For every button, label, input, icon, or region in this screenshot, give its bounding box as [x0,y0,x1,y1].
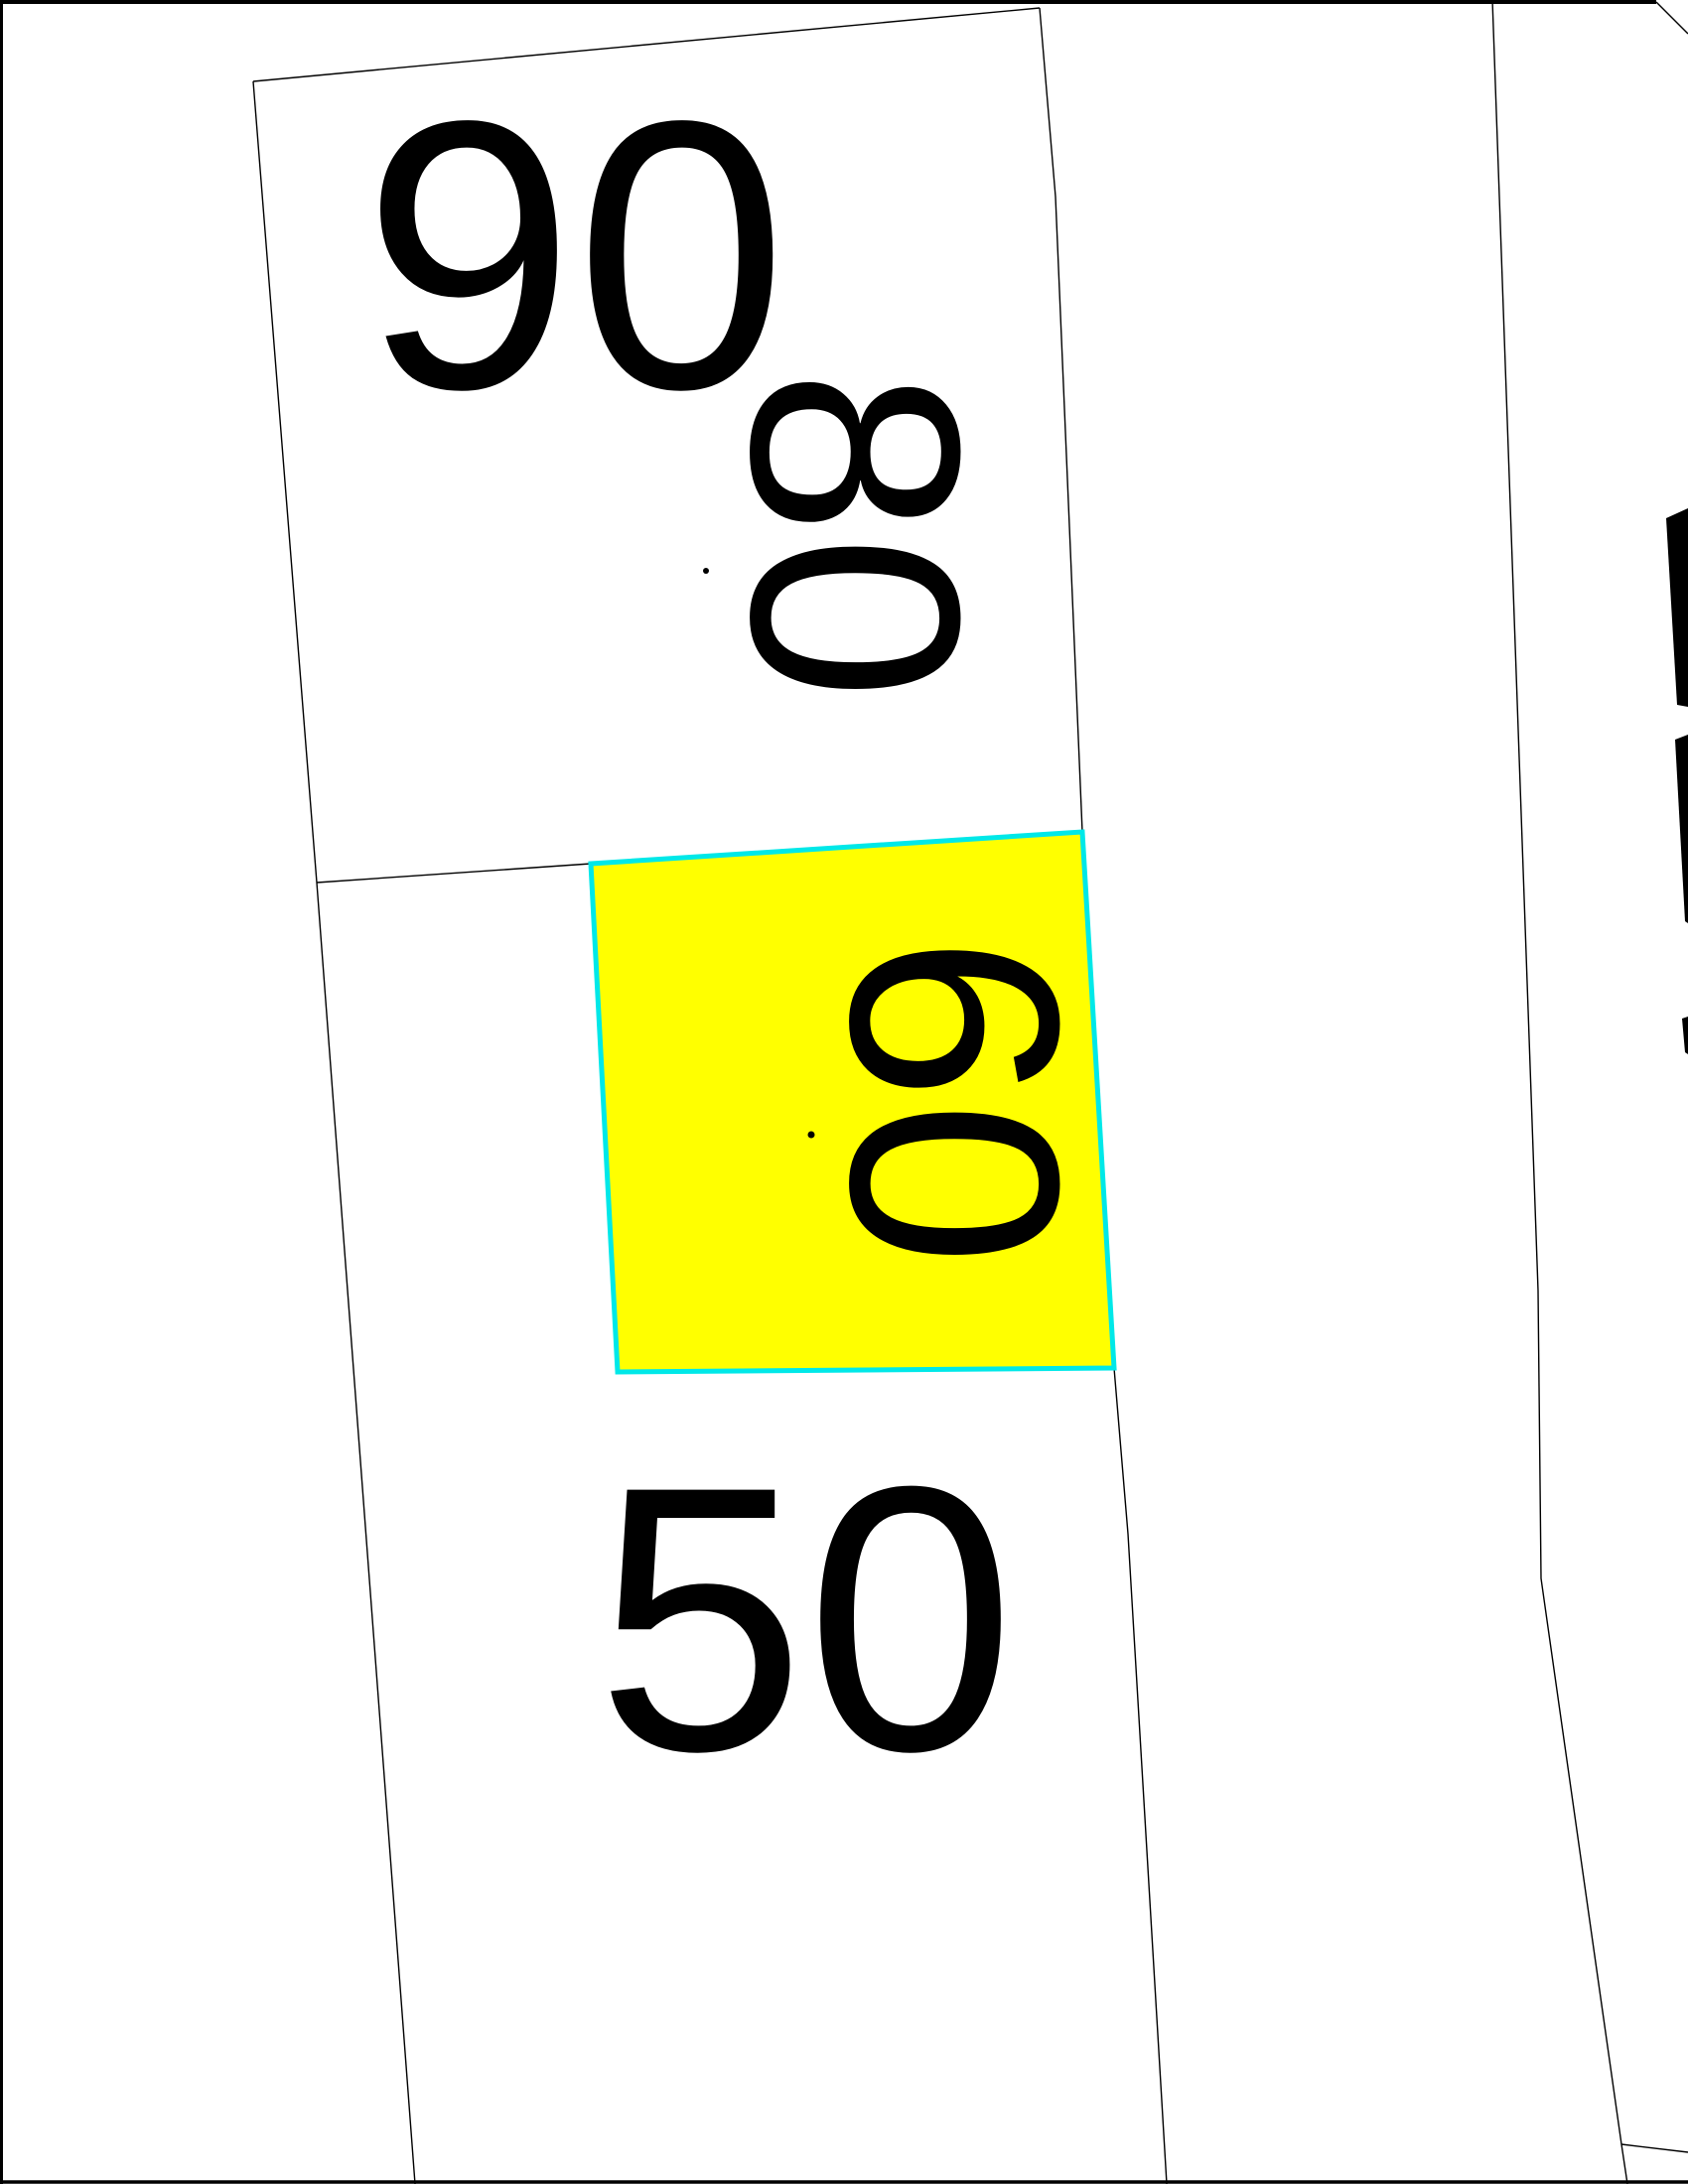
map-canvas[interactable]: 90 80 60 50 [0,0,1688,2184]
parcel-label-80: 80 [689,369,1023,701]
map-viewport: 90 80 60 50 [0,0,1688,2184]
parcel-label-60: 60 [788,935,1122,1267]
parcel-label-50: 50 [596,1408,1016,1830]
